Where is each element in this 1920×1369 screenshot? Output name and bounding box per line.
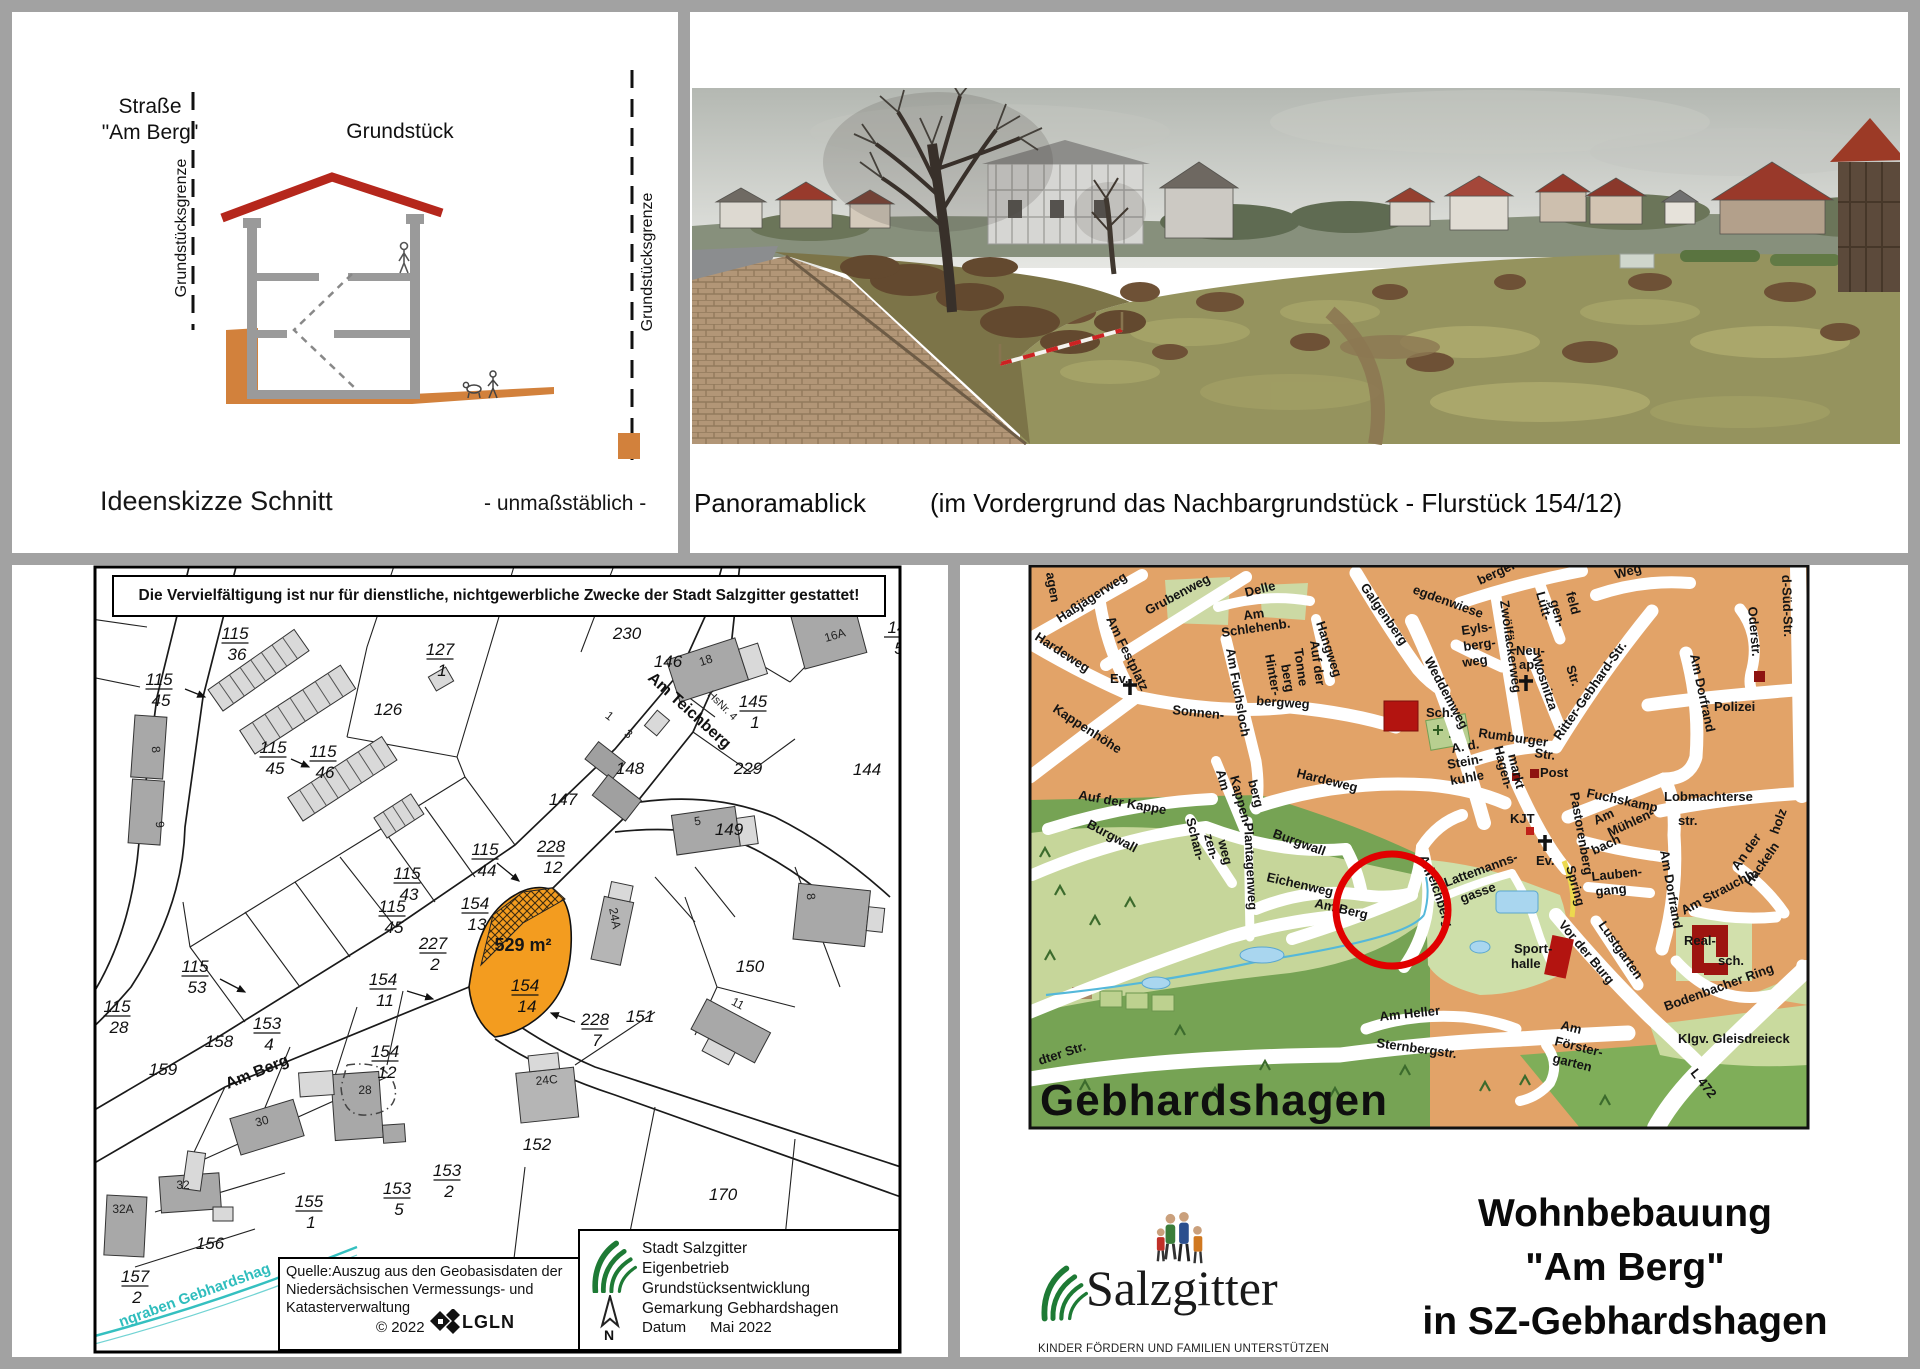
map-label: Gebhardshagen: [1040, 1076, 1388, 1125]
map-label: 146: [654, 652, 683, 671]
area-label: 529 m²: [494, 935, 551, 955]
map-label: 2: [429, 955, 440, 974]
city-map: agenHaßjägerwegGrubenwegDelleAmSchlehenb…: [960, 565, 1908, 1135]
map-label: 127: [426, 640, 455, 659]
map-label: halle: [1511, 956, 1541, 971]
map-label: 149: [715, 820, 744, 839]
map-label: Sport-: [1514, 941, 1552, 956]
map-label: 228: [580, 1010, 610, 1029]
project-title: Wohnbebauung "Am Berg" in SZ-Gebhardshag…: [1390, 1187, 1860, 1349]
agency-line: Gemarkung Gebhardshagen: [642, 1299, 898, 1319]
map-label: 45: [385, 918, 404, 937]
brand-tagline: KINDER FÖRDERN UND FAMILIEN UNTERSTÜTZEN: [1038, 1343, 1329, 1355]
title-line: "Am Berg": [1390, 1241, 1860, 1295]
map-label: 115: [471, 840, 499, 859]
salzgitter-swoosh-icon: [588, 1237, 638, 1293]
house-section: [222, 177, 498, 399]
map-label: 32: [176, 1178, 190, 1192]
map-label: 28: [358, 1083, 372, 1097]
datum-label: Datum: [642, 1319, 686, 1336]
map-label: d-Süd-Str.: [1779, 575, 1796, 638]
map-label: 13: [468, 915, 487, 934]
citymap-panel: agenHaßjägerwegGrubenwegDelleAmSchlehenb…: [960, 565, 1908, 1357]
map-label: Real-: [1684, 933, 1716, 948]
map-label: 46: [316, 763, 335, 782]
lgln-logo: LGLN: [428, 1309, 548, 1339]
map-label: 1: [437, 661, 446, 680]
map-label: str.: [1678, 813, 1698, 828]
sketch-caption: Ideenskizze Schnitt: [100, 486, 333, 517]
source-line: Quelle:Auszug aus den Geobasisdaten der: [286, 1263, 582, 1281]
school-building: [1384, 701, 1418, 731]
boundary-label-right: Grundstücksgrenze: [639, 193, 657, 332]
map-label: Post: [1540, 765, 1569, 780]
map-label: 28: [109, 1018, 129, 1037]
map-label: 152: [523, 1135, 552, 1154]
map-label: 229: [733, 759, 763, 778]
scale-note: - unmaßstäblich -: [484, 492, 646, 516]
map-label: 14: [888, 618, 907, 637]
map-label: 115: [221, 624, 249, 643]
map-label: 153: [433, 1161, 462, 1180]
map-label: 4: [264, 1035, 273, 1054]
plot-label: Grundstück: [330, 120, 470, 144]
caption-detail: (im Vordergrund das Nachbargrundstück - …: [930, 488, 1622, 518]
map-label: 154: [369, 970, 397, 989]
map-label: 5: [394, 1200, 404, 1219]
person-figure-upper: [399, 243, 409, 274]
page: Straße "Am Berg" Grundstücksgrenze Grund…: [0, 0, 1920, 1369]
map-label: 115: [103, 997, 131, 1016]
map-label: 154: [371, 1042, 399, 1061]
agency-line: Stadt Salzgitter: [642, 1239, 898, 1259]
map-label: 153: [383, 1179, 412, 1198]
map-label: 227: [418, 934, 448, 953]
panorama-photo: [690, 12, 1908, 553]
map-label: Polizei: [1714, 699, 1755, 714]
sketch-panel: Straße "Am Berg" Grundstücksgrenze Grund…: [12, 12, 678, 553]
map-label: 53: [188, 978, 207, 997]
map-label: 115: [145, 670, 173, 689]
map-label: 12: [544, 858, 563, 877]
map-label: 24C: [535, 1072, 558, 1088]
roof: [222, 177, 442, 218]
map-label: 12: [378, 1063, 397, 1082]
source-line: Niedersächsischen Vermessungs- und: [286, 1281, 582, 1299]
map-label: Klgv. Gleisdreieck: [1678, 1031, 1791, 1046]
north-label: N: [604, 1327, 614, 1343]
map-label: 156: [196, 1234, 225, 1253]
map-label: 159: [149, 1060, 178, 1079]
map-label: 45: [152, 691, 171, 710]
map-label: 45: [266, 759, 285, 778]
map-label: KJT: [1510, 811, 1535, 826]
street-section: [618, 433, 640, 459]
map-label: 1: [306, 1213, 315, 1232]
map-label: 2: [443, 1182, 454, 1201]
map-label: 115: [181, 957, 209, 976]
map-label: 1: [750, 713, 759, 732]
panorama-caption: Panoramablick(im Vordergrund das Nachbar…: [694, 488, 1622, 519]
map-label: 170: [709, 1185, 738, 1204]
map-label: sch.: [1718, 953, 1744, 968]
map-label: Ev.: [1110, 671, 1129, 686]
map-label: 230: [612, 624, 642, 643]
post-building: [1530, 769, 1539, 778]
map-label: Str.: [1534, 745, 1557, 763]
map-label: 115: [259, 738, 287, 757]
map-label: 36: [228, 645, 247, 664]
street-label: Straße "Am Berg": [90, 94, 210, 146]
map-label: 145: [739, 692, 768, 711]
lgln-text: LGLN: [462, 1313, 515, 1331]
source-box: Quelle:Auszug aus den Geobasisdaten der …: [278, 1257, 590, 1351]
map-label: 44: [478, 861, 497, 880]
polizei-building: [1754, 671, 1765, 682]
map-label: 7: [592, 1031, 602, 1050]
agency-box: Stadt Salzgitter Eigenbetrieb Grundstück…: [578, 1229, 900, 1351]
cadastral-panel: 1153612711451115451154511546228121154411…: [12, 565, 948, 1357]
north-arrow: [596, 1295, 624, 1329]
map-label: 158: [205, 1032, 234, 1051]
brand-name: Salzgitter: [1086, 1259, 1278, 1317]
kjt-building: [1526, 827, 1534, 835]
agency-line: Eigenbetrieb Grundstücksentwicklung: [642, 1259, 898, 1299]
map-label: 115: [393, 864, 421, 883]
title-line: Wohnbebauung: [1390, 1187, 1860, 1241]
lgln-icon: [428, 1309, 462, 1335]
map-label: 154: [461, 894, 489, 913]
map-label: 148: [616, 759, 645, 778]
copy-notice: Die Vervielfältigung ist nur für dienstl…: [112, 575, 886, 617]
map-label: 144: [853, 760, 881, 779]
map-label: 14: [518, 997, 537, 1016]
map-label: 115: [378, 897, 406, 916]
map-label: Lobmachterse: [1664, 789, 1753, 804]
map-label: 155: [295, 1192, 324, 1211]
map-label: 2: [131, 1288, 142, 1307]
map-label: 32A: [112, 1202, 133, 1216]
salzgitter-swoosh-icon: [1038, 1255, 1088, 1327]
salzgitter-logo: Salzgitter KINDER FÖRDERN UND FAMILIEN U…: [1038, 1211, 1408, 1357]
copyright: © 2022: [376, 1319, 425, 1337]
map-label: 150: [736, 957, 765, 976]
map-label: 151: [626, 1007, 654, 1026]
map-label: 115: [309, 742, 337, 761]
panorama-panel: Panoramablick(im Vordergrund das Nachbar…: [690, 12, 1908, 553]
map-label: Ev.: [1536, 853, 1555, 868]
boundary-label-left: Grundstücksgrenze: [173, 159, 191, 298]
map-label: 228: [536, 837, 566, 856]
map-label: 157: [121, 1267, 150, 1286]
map-label: 11: [376, 991, 394, 1010]
title-line: in SZ-Gebhardshagen: [1390, 1295, 1860, 1349]
datum-value: Mai 2022: [710, 1319, 772, 1336]
map-label: 153: [253, 1014, 282, 1033]
caption-word: Panoramablick: [694, 488, 866, 518]
map-label: 126: [374, 700, 403, 719]
map-label: 147: [549, 790, 578, 809]
map-label: 154: [511, 976, 539, 995]
map-label: 529 m²: [494, 935, 551, 955]
